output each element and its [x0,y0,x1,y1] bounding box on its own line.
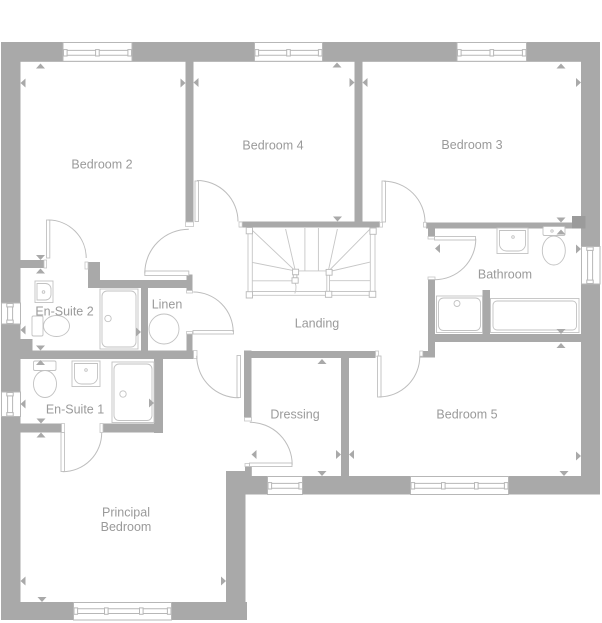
svg-text:Dressing: Dressing [270,408,319,422]
svg-text:Bedroom 2: Bedroom 2 [71,158,132,172]
svg-text:En-Suite 2: En-Suite 2 [35,305,93,319]
svg-text:Principal: Principal [102,506,150,520]
svg-text:Bedroom 4: Bedroom 4 [242,139,303,153]
svg-text:Bedroom 3: Bedroom 3 [441,138,502,152]
svg-text:Landing: Landing [295,317,340,331]
svg-text:Bedroom 5: Bedroom 5 [436,408,497,422]
svg-text:Bathroom: Bathroom [478,268,532,282]
svg-text:Bedroom: Bedroom [101,520,152,534]
svg-text:Linen: Linen [152,298,183,312]
svg-text:En-Suite 1: En-Suite 1 [46,403,104,417]
